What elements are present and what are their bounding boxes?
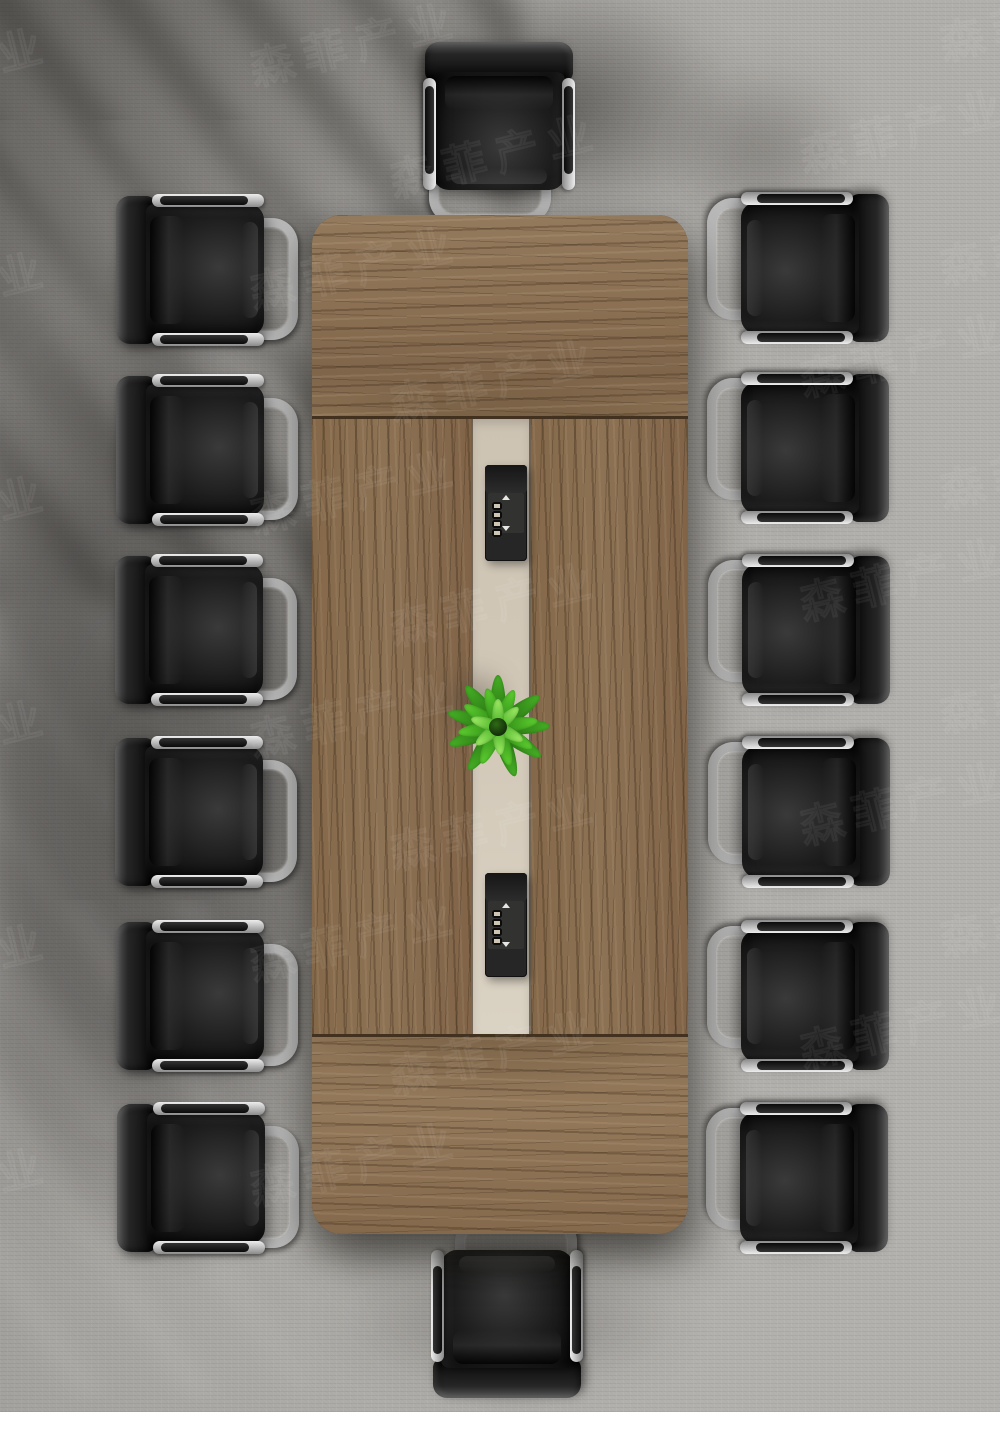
chair-seat [741,382,859,514]
chair-seat [145,564,263,696]
chair-armrest [152,374,264,387]
chair-armrest [741,511,853,524]
chair-armrest [741,1059,853,1072]
chair-left [115,554,275,706]
chair-armrest [153,1241,265,1254]
chair-armrest [741,192,853,205]
table-seam-bottom [312,1034,688,1037]
arrow-down-icon [502,942,510,947]
chair-armrest [151,693,263,706]
table-right-panel [531,418,688,1035]
chair-top [419,46,579,198]
chair-seat [742,746,860,878]
chair-seat [741,930,859,1062]
chair-armrest [742,736,854,749]
chair-seat [433,72,565,190]
chair-left [116,374,276,526]
arrow-down-icon [502,526,510,531]
chair-seat [741,202,859,334]
arrow-up-icon [502,903,510,908]
plant [443,672,553,782]
chair-armrest [152,194,264,207]
plant-pot [489,718,507,736]
chair-seat [147,1112,265,1244]
table-bottom-panel [312,1035,688,1234]
chair-right [730,736,890,888]
module-end-cap [485,465,527,493]
chair-right [730,554,890,706]
power-socket [492,937,502,945]
chair-armrest [423,78,436,190]
chair-bottom [427,1242,587,1394]
chair-left [115,736,275,888]
chair-armrest [741,920,853,933]
power-socket [492,919,502,927]
bottom-module [485,873,527,977]
chair-armrest [151,736,263,749]
chair-seat [742,564,860,696]
chair-right [729,192,889,344]
chair-armrest [151,554,263,567]
module-socket-area [488,493,524,533]
chair-armrest [152,920,264,933]
chair-left [116,194,276,346]
scene: 森菲产业 森菲产业 森菲产业 森菲产业森菲产业 森菲产业 森菲产业 森菲产业森菲… [0,0,1000,1436]
chair-armrest [152,1059,264,1072]
power-socket [492,502,502,510]
arrow-up-icon [502,495,510,500]
module-socket-area [488,901,524,949]
chair-armrest [153,1102,265,1115]
chair-seat [441,1250,573,1368]
chair-armrest [570,1250,583,1362]
chair-seat [146,930,264,1062]
chair-armrest [740,1241,852,1254]
module-end-cap [485,873,527,901]
chair-left [116,920,276,1072]
chair-armrest [152,333,264,346]
chair-right [729,372,889,524]
chair-right [729,920,889,1072]
power-socket [492,928,502,936]
chair-armrest [741,372,853,385]
table-top-panel [312,215,688,418]
power-socket [492,511,502,519]
chair-right [728,1102,888,1254]
chair-armrest [742,554,854,567]
table-seam-top [312,416,688,419]
chair-armrest [431,1250,444,1362]
power-socket [492,520,502,528]
power-socket [492,529,502,537]
chair-armrest [152,513,264,526]
chair-seat [740,1112,858,1244]
chair-armrest [151,875,263,888]
bottom-white-strip [0,1412,1000,1436]
chair-armrest [742,693,854,706]
chair-armrest [742,875,854,888]
chair-seat [146,384,264,516]
chair-armrest [740,1102,852,1115]
chair-seat [145,746,263,878]
chair-seat [146,204,264,336]
power-socket [492,910,502,918]
chair-armrest [741,331,853,344]
top-module [485,465,527,561]
chair-armrest [562,78,575,190]
chair-left [117,1102,277,1254]
